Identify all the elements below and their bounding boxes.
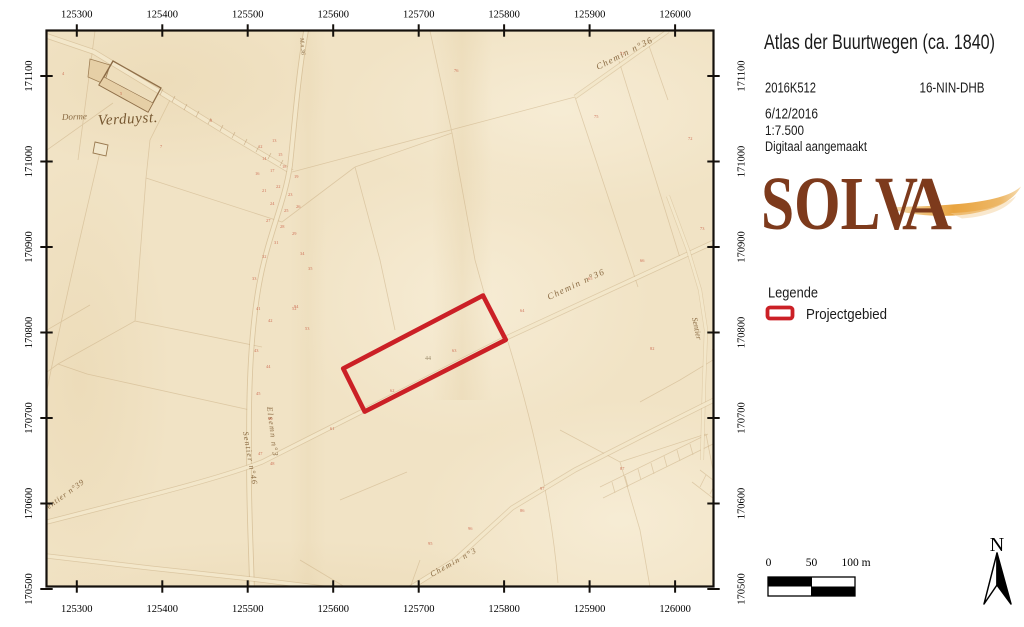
svg-text:170600: 170600 xyxy=(24,488,35,520)
svg-text:170600: 170600 xyxy=(737,488,748,520)
svg-text:44: 44 xyxy=(425,356,431,362)
svg-text:170700: 170700 xyxy=(737,402,748,434)
svg-text:125900: 125900 xyxy=(574,604,606,615)
svg-text:Atlas der Buurtwegen (ca. 1840: Atlas der Buurtwegen (ca. 1840) xyxy=(764,31,995,54)
svg-text:32: 32 xyxy=(262,254,266,259)
svg-text:21: 21 xyxy=(262,188,266,193)
svg-text:125600: 125600 xyxy=(317,604,349,615)
svg-text:12: 12 xyxy=(258,144,262,149)
svg-text:A: A xyxy=(902,162,952,246)
svg-text:125800: 125800 xyxy=(488,10,520,21)
svg-text:126000: 126000 xyxy=(659,10,691,21)
svg-text:170900: 170900 xyxy=(24,231,35,263)
svg-text:125800: 125800 xyxy=(488,604,520,615)
svg-text:50: 50 xyxy=(806,557,818,569)
svg-text:1:7.500: 1:7.500 xyxy=(765,123,804,138)
svg-text:41: 41 xyxy=(256,306,260,311)
svg-text:22: 22 xyxy=(276,184,280,189)
svg-text:Digitaal aangemaakt: Digitaal aangemaakt xyxy=(765,139,867,154)
svg-text:16-NIN-DHB: 16-NIN-DHB xyxy=(920,81,985,97)
svg-text:82: 82 xyxy=(650,346,654,351)
svg-text:125500: 125500 xyxy=(232,10,264,21)
svg-text:126000: 126000 xyxy=(659,604,691,615)
svg-text:170700: 170700 xyxy=(24,402,35,434)
svg-text:125700: 125700 xyxy=(403,10,435,21)
svg-text:Projectgebied: Projectgebied xyxy=(806,306,887,323)
svg-text:171000: 171000 xyxy=(24,146,35,178)
svg-text:2016K512: 2016K512 xyxy=(765,81,816,97)
svg-text:170500: 170500 xyxy=(737,573,748,605)
svg-text:125700: 125700 xyxy=(403,604,435,615)
svg-text:125300: 125300 xyxy=(61,10,93,21)
svg-text:Verduyst.: Verduyst. xyxy=(97,110,158,129)
svg-text:171100: 171100 xyxy=(737,60,748,91)
svg-text:125600: 125600 xyxy=(317,10,349,21)
svg-text:72: 72 xyxy=(688,136,692,141)
svg-text:31: 31 xyxy=(274,240,278,245)
svg-text:170800: 170800 xyxy=(24,317,35,349)
svg-text:62: 62 xyxy=(390,388,394,393)
svg-text:6/12/2016: 6/12/2016 xyxy=(765,107,818,123)
svg-text:125400: 125400 xyxy=(147,10,179,21)
svg-text:125500: 125500 xyxy=(232,604,264,615)
svg-text:0: 0 xyxy=(766,557,772,569)
svg-text:171100: 171100 xyxy=(24,60,35,91)
svg-text:SOLV: SOLV xyxy=(761,162,918,246)
svg-text:170500: 170500 xyxy=(24,573,35,605)
svg-text:71: 71 xyxy=(620,51,624,56)
svg-text:125300: 125300 xyxy=(61,604,93,615)
svg-text:170800: 170800 xyxy=(737,317,748,349)
svg-text:Dorme: Dorme xyxy=(61,111,87,122)
svg-text:125900: 125900 xyxy=(574,10,606,21)
svg-text:100 m: 100 m xyxy=(841,557,870,569)
svg-text:170900: 170900 xyxy=(737,231,748,263)
svg-text:171000: 171000 xyxy=(737,146,748,178)
svg-text:125400: 125400 xyxy=(147,604,179,615)
svg-text:Legende: Legende xyxy=(768,285,818,302)
svg-text:98: 98 xyxy=(730,296,735,301)
svg-text:42: 42 xyxy=(268,318,272,323)
svg-text:61: 61 xyxy=(330,426,334,431)
